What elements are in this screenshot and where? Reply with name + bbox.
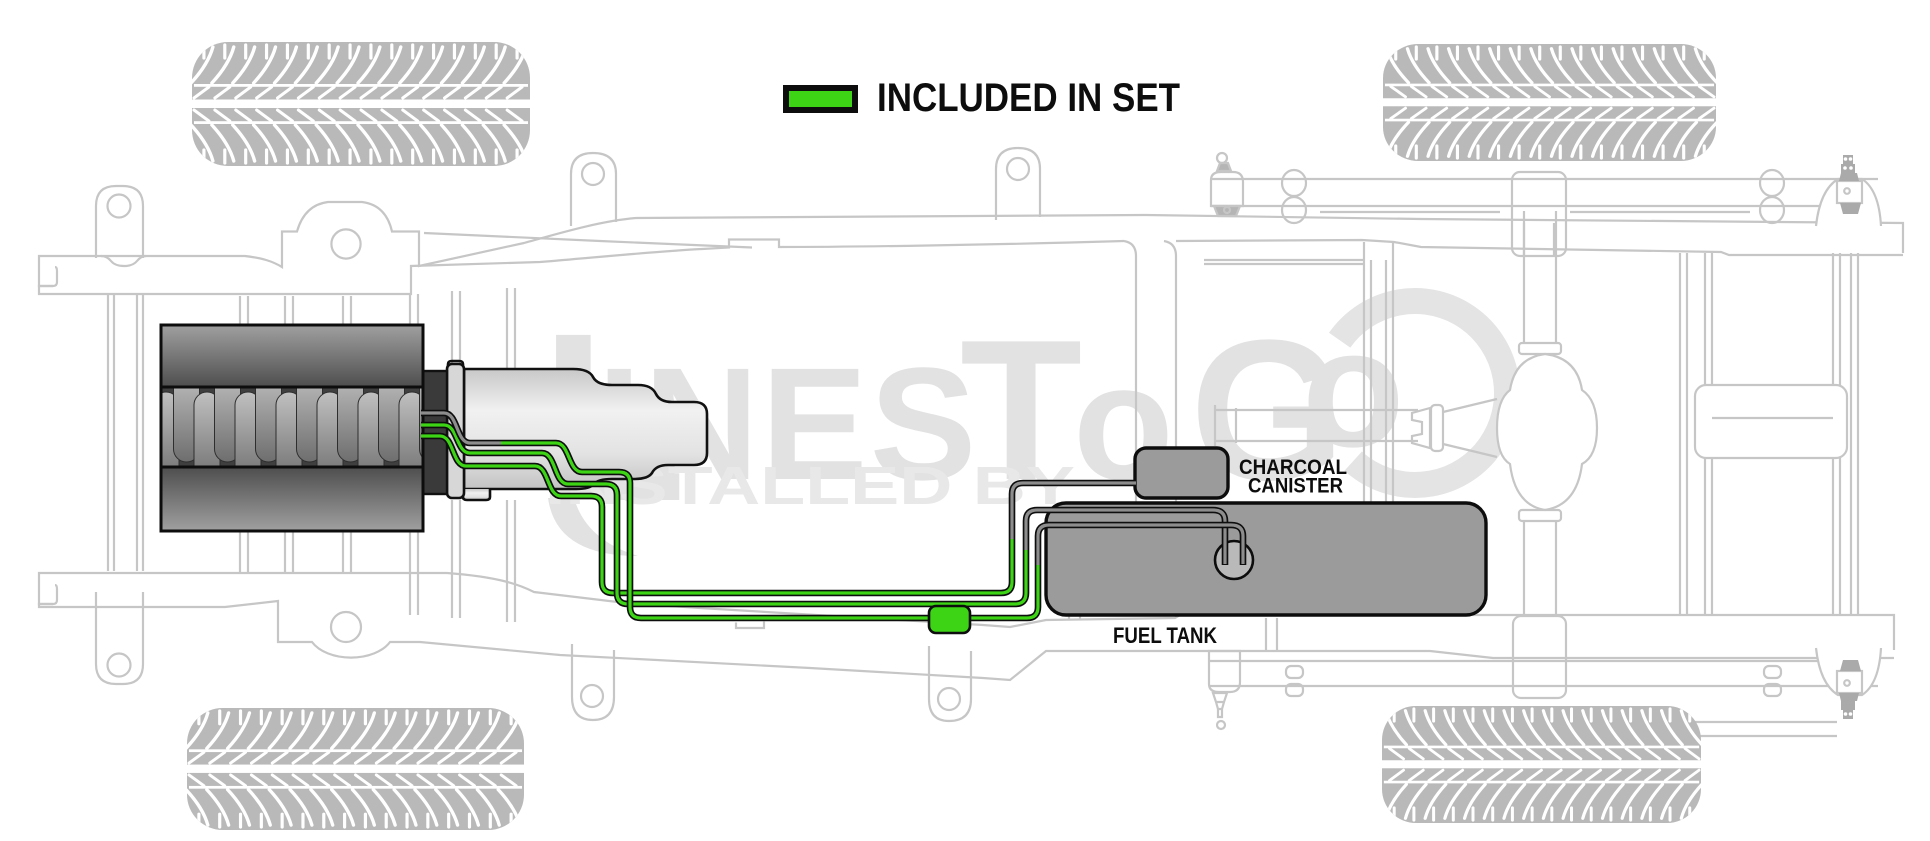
svg-text:INCLUDED IN SET: INCLUDED IN SET [877, 76, 1180, 120]
svg-text:CANISTER: CANISTER [1248, 474, 1343, 498]
svg-text:FUEL TANK: FUEL TANK [1113, 623, 1217, 648]
